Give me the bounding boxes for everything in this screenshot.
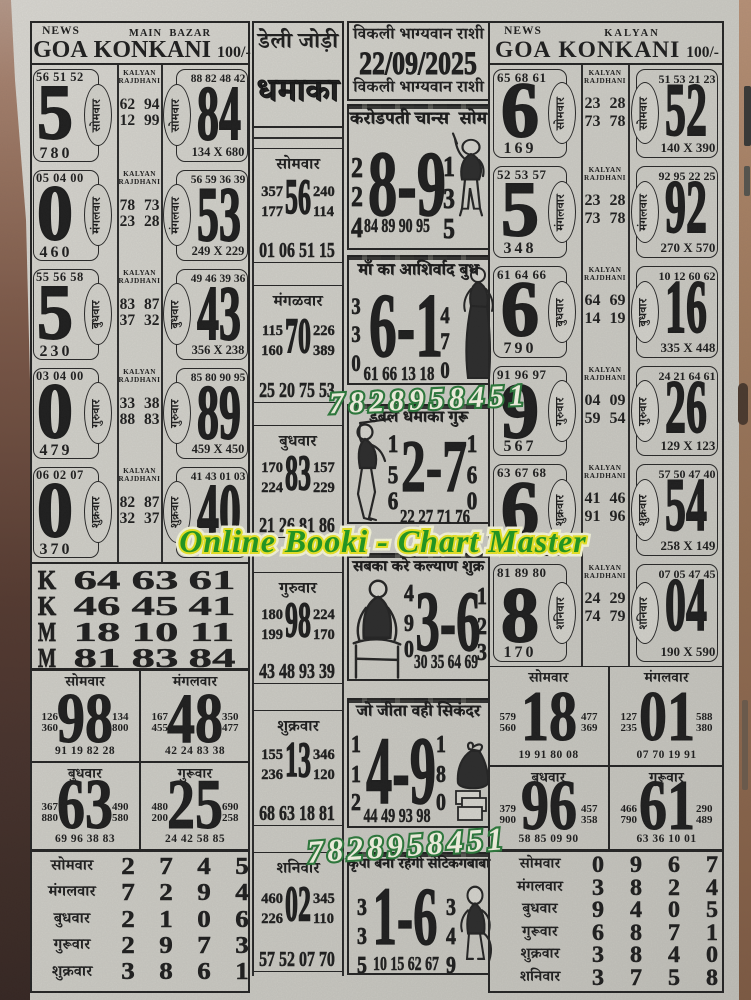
svg-text:7828958451: 7828958451	[306, 820, 508, 870]
svg-text:7828958451: 7828958451	[328, 379, 529, 421]
svg-text:Online Booki - Chart Master: Online Booki - Chart Master	[179, 523, 587, 559]
